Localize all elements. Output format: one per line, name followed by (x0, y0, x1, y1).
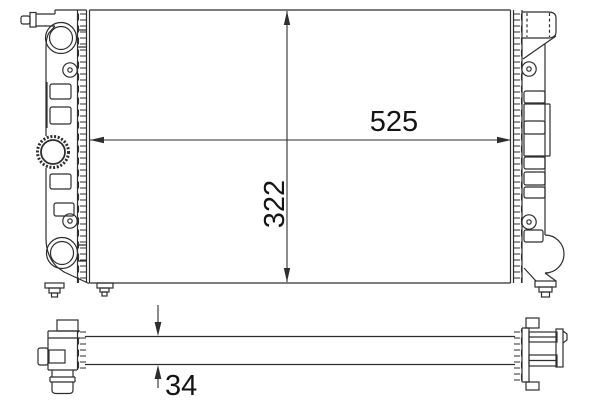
mounting-boss-top-left (63, 63, 77, 77)
dim-label-depth: 34 (165, 370, 197, 400)
left-crimp-seam (78, 10, 87, 283)
left-drain-plug (45, 283, 64, 297)
bottom-left-pipe (50, 370, 75, 394)
upper-spigot (21, 13, 55, 28)
arrowhead-down-icon (284, 268, 290, 282)
dim-label-width: 525 (370, 106, 418, 138)
arrowhead-left-icon (90, 137, 104, 143)
technical-drawing-canvas: 525 322 34 (0, 0, 600, 400)
filler-cap (38, 137, 69, 168)
dimension-width: 525 (90, 106, 511, 143)
dimension-depth: 34 (155, 305, 198, 400)
left-tank (21, 10, 113, 297)
mounting-boss-bottom-right (522, 215, 536, 229)
top-port (522, 12, 556, 59)
arrowhead-up-icon (155, 365, 162, 379)
right-tank-windows (524, 91, 550, 242)
mounting-boss-top-right (522, 62, 536, 76)
bottom-view (38, 318, 567, 394)
radiator-core (87, 10, 514, 283)
dimension-height: 322 (259, 11, 291, 282)
dim-label-height: 322 (259, 180, 291, 228)
arrowhead-right-icon (497, 137, 511, 143)
core-section-strip (85, 337, 515, 365)
front-view (21, 10, 564, 297)
radiator-technical-drawing: 525 322 34 (0, 0, 600, 400)
bottom-right-fitting (514, 318, 567, 390)
bottom-left-fitting (38, 320, 86, 394)
left-tank-windows (47, 82, 74, 216)
side-bulge (545, 235, 564, 273)
right-crimp-seam (514, 10, 522, 283)
arrowhead-down-icon (155, 322, 162, 336)
left-mounting-pin (97, 283, 113, 296)
arrowhead-up-icon (284, 11, 290, 25)
right-tank (522, 12, 564, 297)
